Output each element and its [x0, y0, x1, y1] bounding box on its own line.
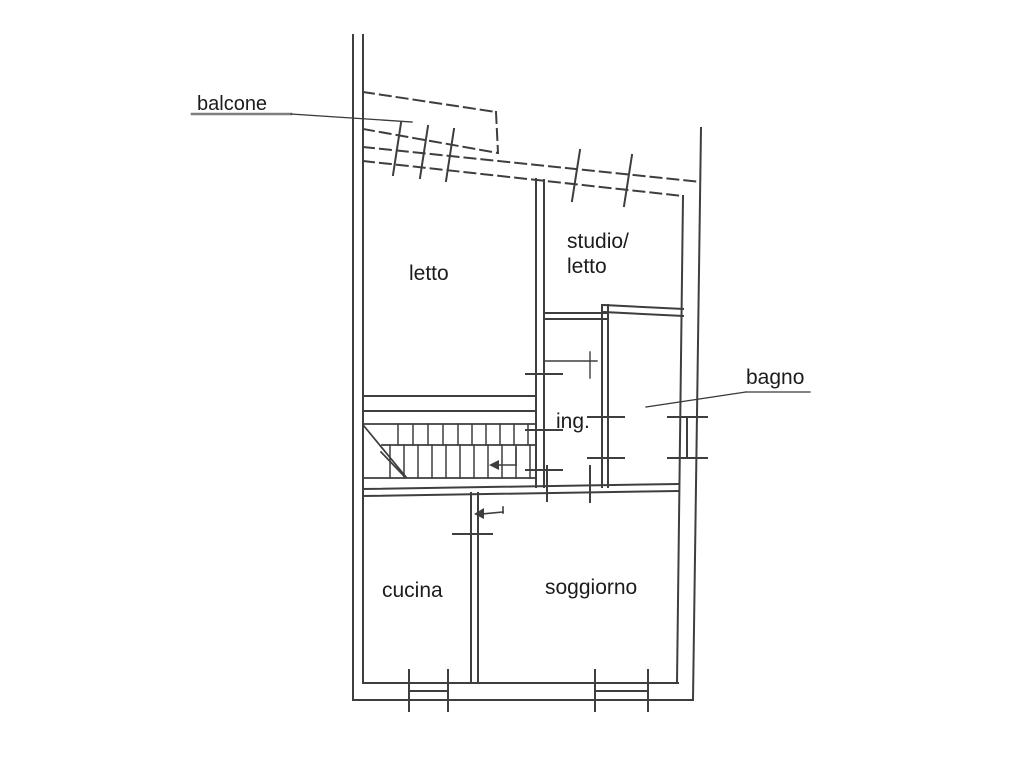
wall-studio-bottom — [544, 313, 608, 319]
balcony-outline-segment — [496, 112, 498, 153]
window-soggiorno — [595, 670, 648, 711]
floor-plan-drawing — [0, 0, 1024, 768]
stairs-diagonal-segment — [364, 426, 406, 477]
room-label-cucina: cucina — [382, 579, 443, 602]
wall-left — [353, 35, 363, 700]
stairs-edges — [363, 424, 536, 478]
balcony-outline-segment — [363, 92, 496, 112]
wall-bagno-top-segment — [604, 312, 683, 316]
balcone-leader-line-thin-segment — [291, 114, 412, 122]
window-ticks-top-segment — [624, 155, 632, 206]
stairs-diagonal — [364, 426, 406, 477]
wall-bagno-top-segment — [604, 305, 683, 309]
wall-letto-right — [536, 179, 544, 487]
room-label-balcone: balcone — [197, 93, 267, 116]
stairs-direction-arrow-arrowhead — [489, 460, 499, 470]
stairs-diagonal-segment — [381, 452, 404, 476]
window-bagno — [668, 417, 707, 458]
room-label-letto: letto — [409, 262, 449, 285]
door-ticks-hall-soggiorno — [547, 466, 590, 502]
wall-right-segment — [677, 196, 683, 683]
wall-bagno-left — [602, 305, 608, 487]
window-cucina — [409, 670, 448, 711]
wall-top-slanted — [363, 147, 701, 196]
window-ticks-top-segment — [420, 126, 428, 178]
window-ticks-top-segment — [572, 150, 580, 201]
door-arrow-cucina-segment — [482, 512, 503, 514]
window-ticks-top — [393, 123, 632, 206]
balcone-leader-line-thin — [291, 114, 412, 122]
wall-bagno-top — [604, 305, 683, 316]
stairs-treads-upper — [398, 424, 528, 445]
wall-right — [677, 128, 701, 700]
bagno-leader-line-segment — [646, 392, 746, 407]
balcony-outline — [363, 92, 498, 153]
window-ticks-top-segment — [393, 123, 401, 175]
wall-right-segment — [693, 128, 701, 700]
door-ticks-bagno — [588, 417, 624, 458]
room-label-bagno: bagno — [746, 366, 804, 389]
stairs-treads-lower — [390, 445, 530, 478]
wall-hall-bottom-segment — [363, 491, 678, 496]
wall-hall-bottom — [363, 484, 678, 496]
bagno-leader-line — [646, 392, 810, 407]
room-label-ing: ing. — [556, 410, 590, 433]
room-label-studio-letto: studio/ letto — [567, 229, 629, 279]
wall-top-slanted-segment — [363, 147, 701, 182]
floor-plan-page: balcone letto studio/ letto ing. bagno c… — [0, 0, 1024, 768]
wall-top-slanted-segment — [363, 161, 683, 196]
wall-hall-bottom-segment — [363, 484, 678, 489]
wall-letto-bottom — [363, 396, 536, 411]
room-label-soggiorno: soggiorno — [545, 576, 637, 599]
wall-divider-cucina-soggiorno — [471, 493, 478, 683]
